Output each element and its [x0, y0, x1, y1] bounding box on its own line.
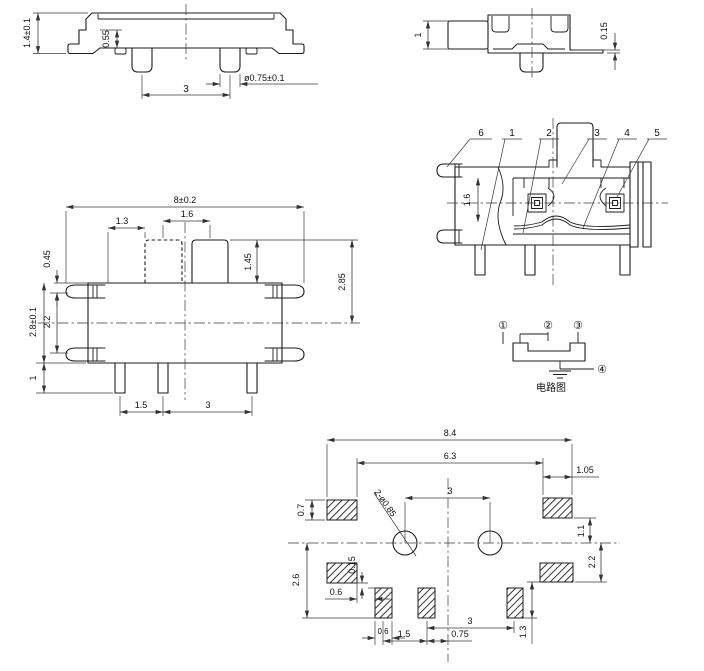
round-pin [220, 48, 240, 72]
slider-knob [448, 21, 488, 49]
dim-fp-lower-pad: 2.2 [587, 556, 597, 569]
dim-fp-pitch-2: 0.75 [451, 629, 469, 639]
slider-knob [192, 240, 228, 283]
round-pin [520, 53, 543, 72]
knob-alt-position [145, 240, 182, 283]
top-view: 8±0.2 1.6 1.3 1.45 2.85 0.45 2.8±0.1 2.2… [28, 195, 360, 416]
dim-top-tab: 0.45 [42, 250, 52, 268]
dim-top-pin-length: 1 [28, 375, 38, 380]
dim-fp-pitch-3: 3 [467, 616, 472, 626]
dim-top-tab-span: 2.2 [42, 316, 52, 329]
solder-pad [375, 588, 392, 618]
common-contact-symbol [513, 343, 585, 361]
circuit-caption: 电路图 [536, 381, 566, 394]
side-elevation-view: 1.4±0.1 0.55 3 ø0.75±0.1 [22, 4, 318, 99]
corner-tab [66, 285, 105, 298]
dim-fp-pad-height-13: 1.3 [518, 626, 528, 639]
dim-fp-bottom-row: 2.6 [291, 574, 301, 587]
corner-tab [265, 348, 304, 361]
spring-contact [514, 216, 630, 226]
solder-pad [540, 563, 573, 582]
dim-section-contact: 1.6 [462, 194, 472, 207]
corner-tab [437, 230, 462, 243]
pcb-footprint-view: 8.4 6.3 1.05 0.7 3 2-ø0.85 1.1 2.2 2.6 0… [288, 428, 620, 662]
dim-fp-pad-width: 1.05 [576, 465, 594, 475]
dim-fp-pitch-1: 1.5 [398, 629, 411, 639]
dim-side-step: 0.55 [101, 30, 111, 48]
dim-end-tab-thickness: 0.15 [599, 22, 609, 40]
part-label-5: 5 [654, 128, 660, 139]
actuator [557, 123, 593, 167]
dim-fp-edge-gap: 0.6 [330, 587, 343, 597]
dim-top-knob-to-center: 2.85 [337, 273, 347, 291]
engineering-drawing-sheet: 1.4±0.1 0.55 3 ø0.75±0.1 1 0.15 [0, 0, 704, 671]
terminal-pin [525, 245, 535, 275]
bracket-tab [570, 50, 603, 53]
hole-callout: 2-ø0.85 [372, 487, 398, 518]
dim-side-pin-pitch: 3 [183, 84, 189, 95]
dim-fp-inner: 6.3 [444, 451, 457, 461]
corner-tab [437, 164, 462, 177]
dim-fp-pad-gap: 0.15 [347, 556, 357, 574]
solder-pad [543, 498, 572, 518]
terminal-3-label: ③ [573, 320, 583, 332]
terminal-pin [115, 363, 125, 393]
terminal-pin [475, 245, 485, 275]
mount-boss [115, 48, 126, 54]
part-label-1: 1 [509, 128, 515, 139]
dim-side-pin-diameter: ø0.75±0.1 [244, 73, 284, 83]
dim-top-knob-width: 1.3 [116, 216, 129, 226]
round-pin [132, 48, 152, 72]
terminal-pin [158, 363, 168, 393]
terminal-2-label: ② [543, 320, 553, 332]
part-label-6: 6 [478, 128, 484, 139]
dim-side-height: 1.4±0.1 [22, 18, 32, 48]
dim-top-pin-pitch-1: 1.5 [135, 400, 148, 410]
part-label-3: 3 [594, 128, 600, 139]
part-label-2: 2 [546, 128, 552, 139]
corner-tab [66, 348, 105, 361]
end-view: 1 0.15 [413, 8, 620, 80]
dim-top-knob-height: 1.45 [243, 253, 253, 271]
dim-fp-hole-pitch: 3 [447, 486, 452, 496]
mount-boss [246, 48, 257, 54]
dim-top-width: 8±0.2 [174, 195, 196, 205]
break-line [498, 167, 506, 245]
contact-moldings [548, 188, 606, 206]
side-posts [630, 162, 651, 247]
dim-top-depth: 2.8±0.1 [28, 307, 38, 337]
circuit-diagram: ① ② ③ ④ 电路图 [498, 320, 607, 394]
left-gullwing-leg [68, 30, 100, 54]
dim-fp-pad-to-center: 1.1 [576, 525, 586, 538]
corner-tab [265, 285, 304, 298]
dim-end-knob: 1 [413, 32, 423, 37]
slide-switch-drawing: 1.4±0.1 0.55 3 ø0.75±0.1 1 0.15 [0, 0, 704, 671]
terminal-4-label: ④ [597, 364, 607, 376]
dim-top-pin-pitch-2: 3 [205, 400, 210, 410]
part-label-4: 4 [624, 128, 630, 139]
terminal-1-label: ① [498, 320, 508, 332]
terminal-pin [620, 245, 630, 275]
right-gullwing-leg [272, 30, 304, 54]
ground-icon [549, 371, 571, 378]
section-view: 1.6 6 1 2 3 4 5 [437, 118, 668, 288]
solder-pad [418, 588, 435, 618]
dim-fp-overall: 8.4 [444, 428, 457, 438]
dim-fp-pad-height: 0.7 [296, 504, 306, 517]
dim-top-travel: 1.6 [181, 209, 194, 219]
solder-pad [507, 588, 523, 618]
terminal-pin [247, 363, 257, 393]
solder-pad [327, 500, 357, 520]
